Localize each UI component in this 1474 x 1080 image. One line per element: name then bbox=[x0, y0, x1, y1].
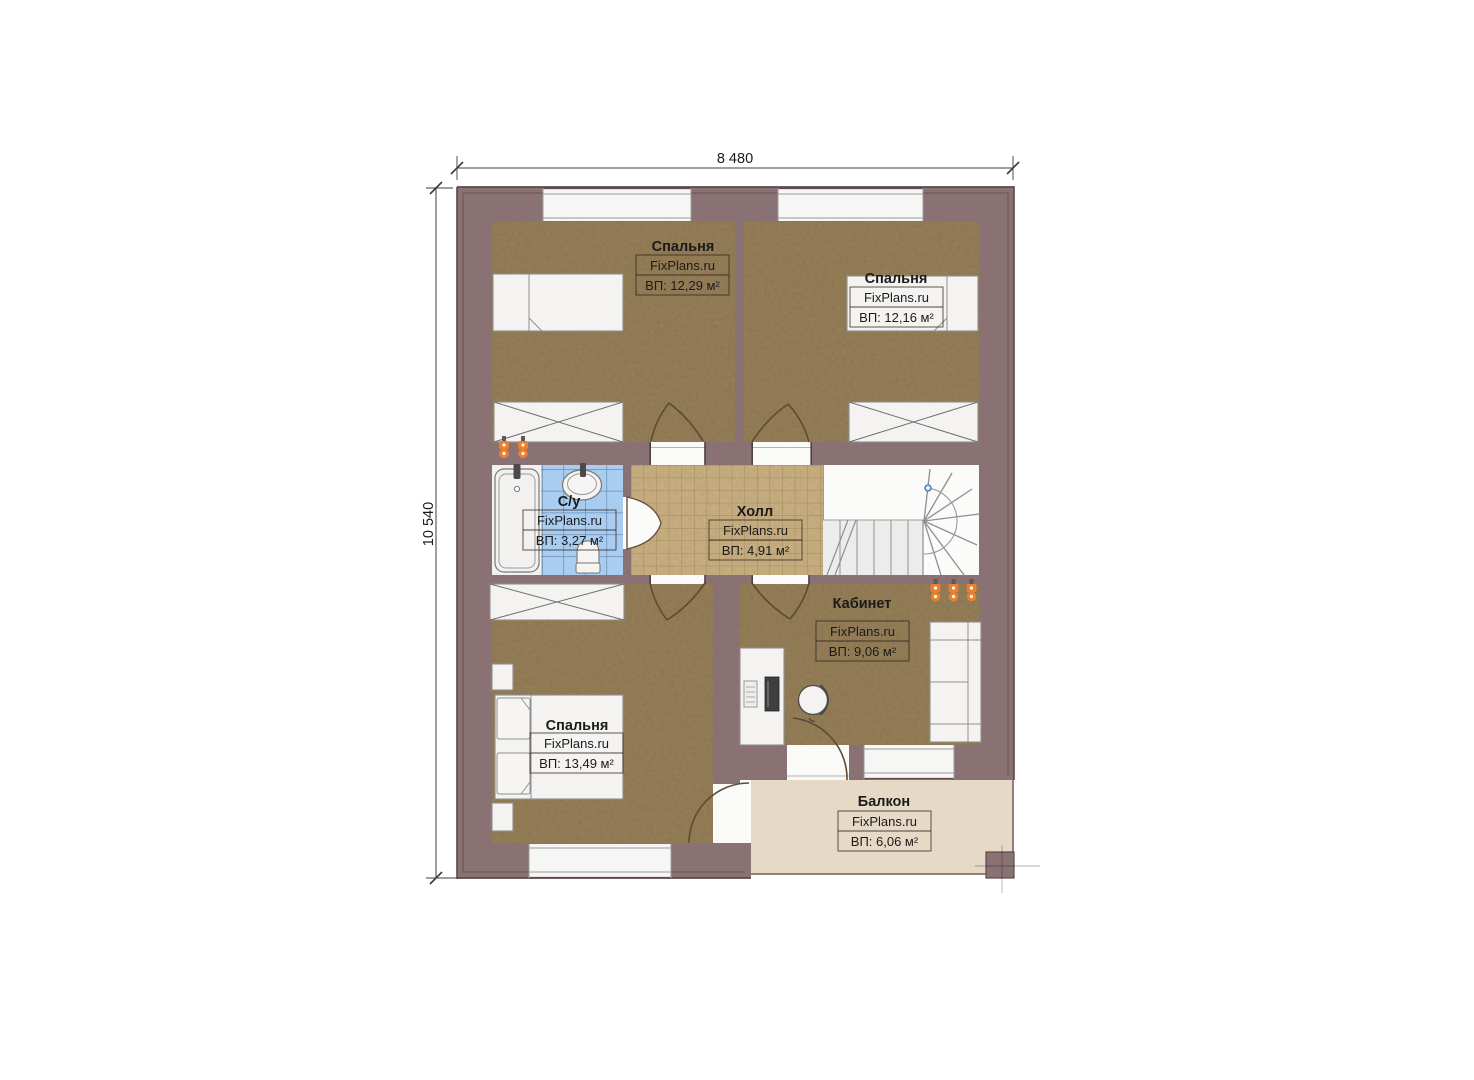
svg-text:ВП: 4,91 м²: ВП: 4,91 м² bbox=[722, 543, 790, 558]
svg-text:8 480: 8 480 bbox=[717, 151, 753, 167]
svg-text:ВП: 13,49 м²: ВП: 13,49 м² bbox=[539, 756, 614, 771]
svg-text:ВП: 3,27 м²: ВП: 3,27 м² bbox=[536, 533, 604, 548]
svg-text:FixPlans.ru: FixPlans.ru bbox=[723, 523, 788, 538]
svg-text:FixPlans.ru: FixPlans.ru bbox=[544, 736, 609, 751]
svg-text:ВП: 6,06 м²: ВП: 6,06 м² bbox=[851, 834, 919, 849]
svg-text:Холл: Холл bbox=[737, 504, 773, 520]
svg-text:Спальня: Спальня bbox=[652, 239, 715, 255]
svg-text:Балкон: Балкон bbox=[858, 794, 910, 810]
svg-text:ВП: 12,29 м²: ВП: 12,29 м² bbox=[645, 278, 720, 293]
svg-text:FixPlans.ru: FixPlans.ru bbox=[852, 814, 917, 829]
svg-text:FixPlans.ru: FixPlans.ru bbox=[830, 624, 895, 639]
svg-text:Кабинет: Кабинет bbox=[833, 596, 892, 612]
svg-text:FixPlans.ru: FixPlans.ru bbox=[650, 258, 715, 273]
svg-text:Спальня: Спальня bbox=[865, 271, 928, 287]
svg-text:ВП: 12,16 м²: ВП: 12,16 м² bbox=[859, 310, 934, 325]
svg-text:10 540: 10 540 bbox=[421, 502, 437, 546]
svg-text:С/у: С/у bbox=[558, 494, 581, 510]
svg-text:ВП: 9,06 м²: ВП: 9,06 м² bbox=[829, 644, 897, 659]
svg-text:Спальня: Спальня bbox=[546, 718, 609, 734]
svg-text:FixPlans.ru: FixPlans.ru bbox=[864, 290, 929, 305]
svg-text:FixPlans.ru: FixPlans.ru bbox=[537, 513, 602, 528]
